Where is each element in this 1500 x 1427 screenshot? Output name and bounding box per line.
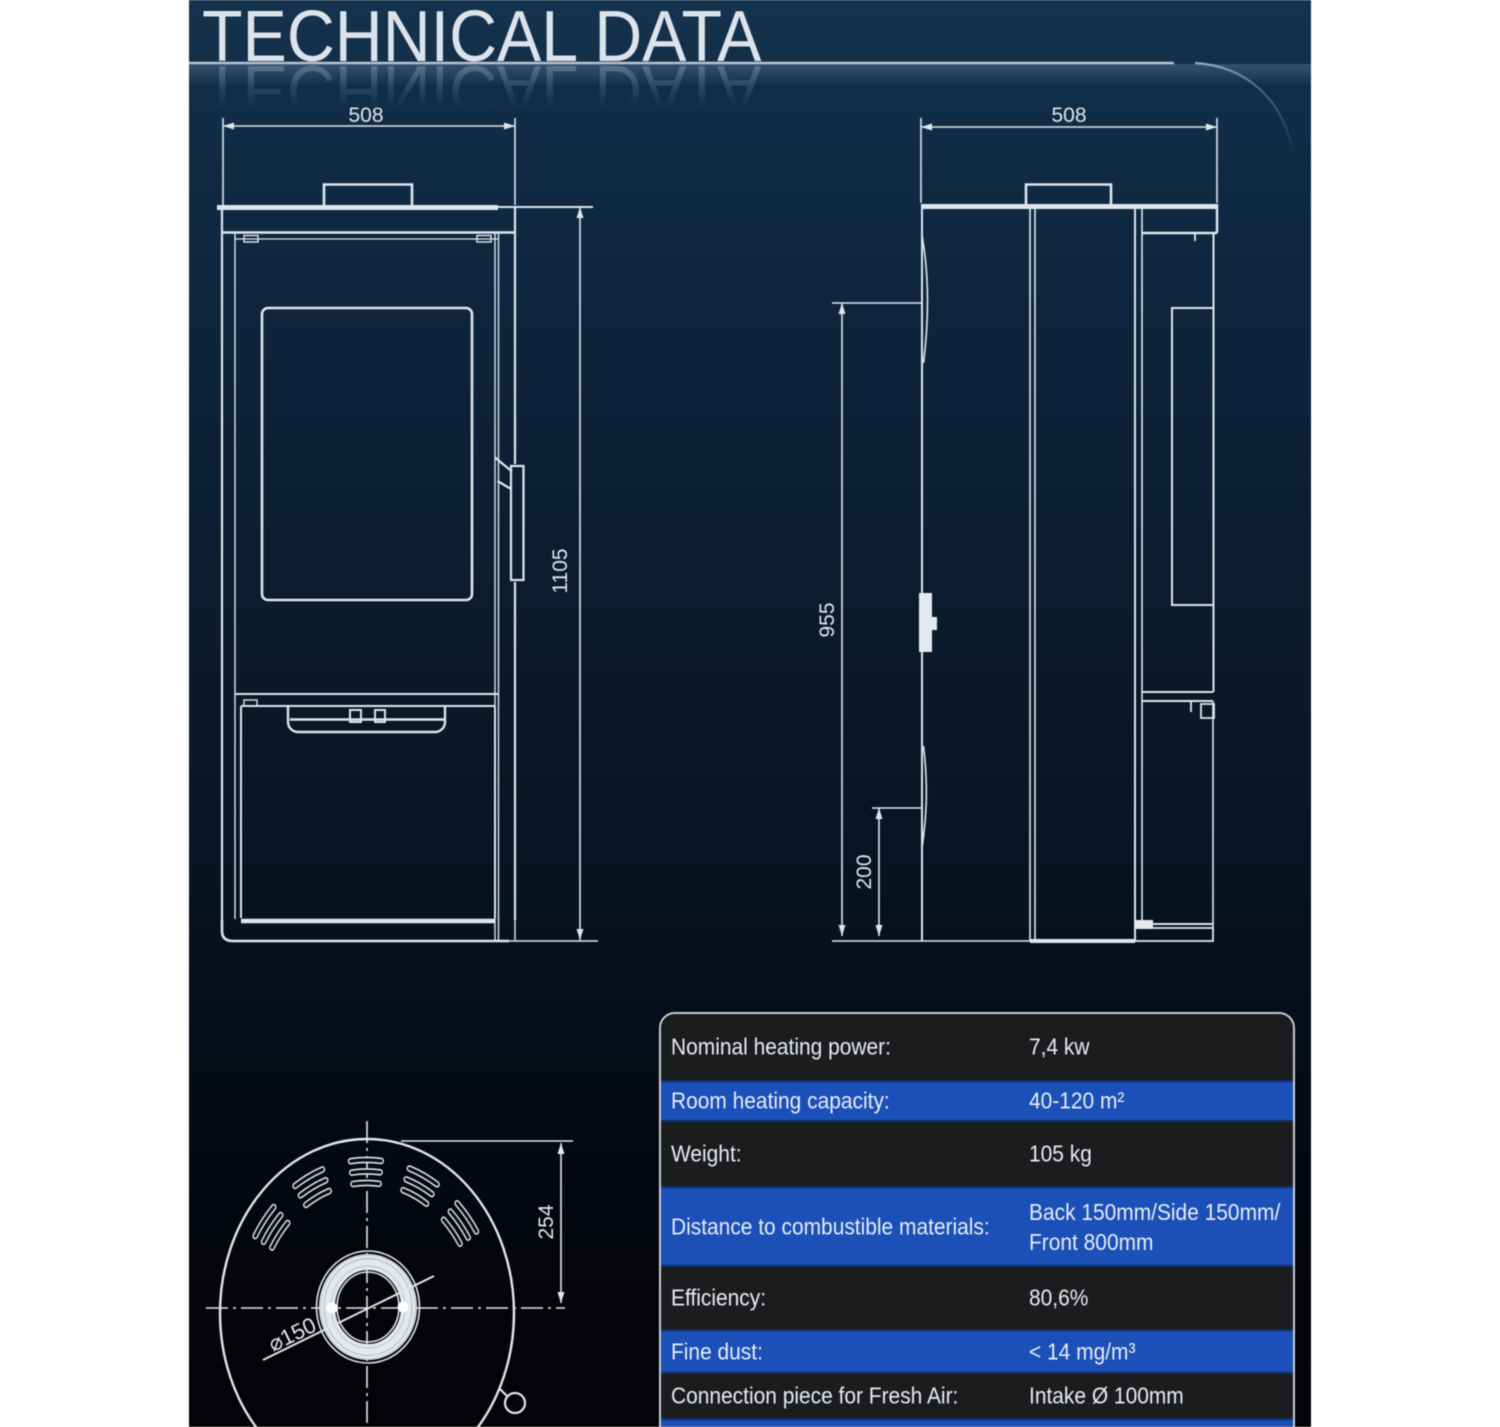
svg-text:⌀150: ⌀150 (264, 1312, 320, 1356)
svg-text:1105: 1105 (549, 548, 572, 593)
svg-text:254: 254 (535, 1204, 558, 1239)
svg-text:955: 955 (816, 602, 839, 637)
svg-text:508: 508 (348, 104, 383, 127)
svg-text:200: 200 (853, 854, 876, 889)
svg-text:508: 508 (1051, 104, 1086, 127)
